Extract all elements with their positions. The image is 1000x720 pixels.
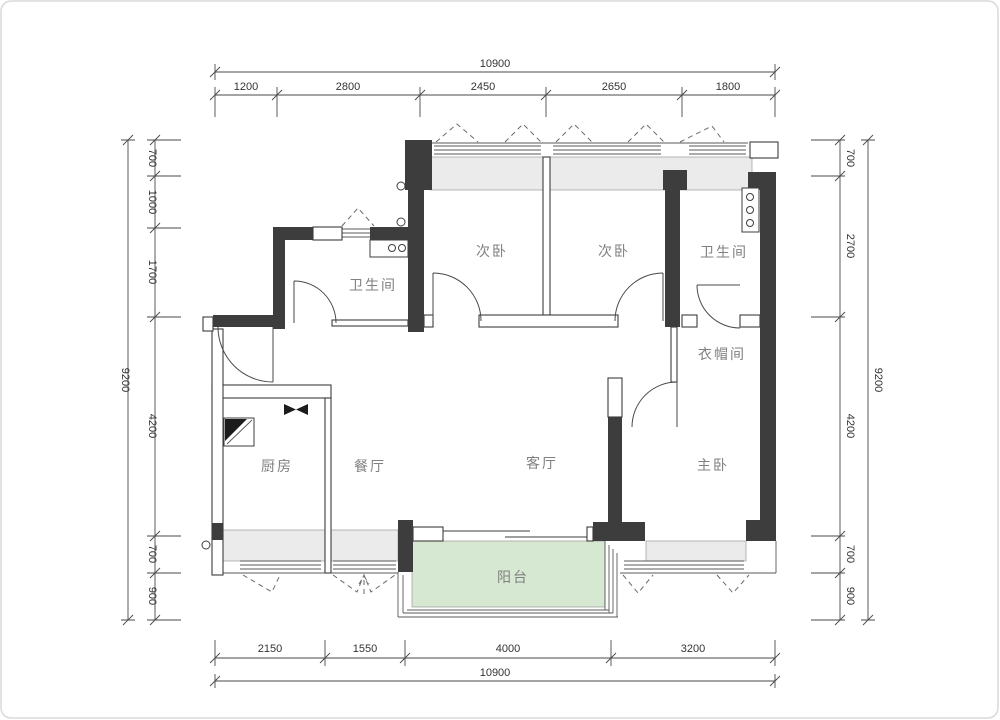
dim-top-seg: 2450 xyxy=(471,81,495,93)
room-label-cloakroom: 衣帽间 xyxy=(698,346,746,362)
balcony-west-column xyxy=(398,520,413,572)
bed1-window xyxy=(434,146,541,154)
swing-bed1-b xyxy=(505,124,541,142)
bath1-door xyxy=(294,281,336,323)
partition-walls xyxy=(203,142,778,575)
corridor-wall-stub xyxy=(608,378,622,417)
dim-top-seg: 2650 xyxy=(602,81,626,93)
dim-left-seg: 1700 xyxy=(146,260,158,284)
swing-bath2 xyxy=(680,126,724,142)
dim-left-seg: 700 xyxy=(146,545,158,563)
dim-left-seg: 4200 xyxy=(146,414,158,438)
entry-wall xyxy=(213,315,285,327)
bath2-south-stub-west xyxy=(682,315,697,327)
dim-ticks-right xyxy=(811,140,875,620)
cloakroom-divider xyxy=(671,327,677,382)
drain-pipe-icon xyxy=(397,218,405,226)
north-west-corner-column xyxy=(405,140,432,190)
bath2-window xyxy=(689,146,746,154)
bay-corner-step xyxy=(750,142,778,158)
balcony-sliding-door xyxy=(443,531,587,537)
bedrooms-south-wall xyxy=(479,315,618,327)
kitchen-window-sill xyxy=(223,530,325,561)
swing-master-a xyxy=(623,575,653,593)
kitchen-sw-column xyxy=(212,523,223,540)
structural-walls xyxy=(212,140,776,572)
dining-window-sill xyxy=(331,530,398,561)
north-bay-sill xyxy=(430,157,752,190)
bath2-south-stub-east xyxy=(740,315,760,327)
dim-top-seg: 1800 xyxy=(716,81,740,93)
dim-right-seg: 700 xyxy=(844,149,856,167)
dim-bottom-seg: 4000 xyxy=(496,643,520,655)
kitchen-north-wall xyxy=(212,385,331,398)
swing-bed1-a xyxy=(436,124,478,142)
dim-bottom-seg: 3200 xyxy=(681,643,705,655)
slider-jamb-east xyxy=(587,527,593,541)
bed1-bed2-divider xyxy=(543,157,550,315)
master-west-wall xyxy=(608,417,622,527)
drain-pipe-icon xyxy=(397,182,405,190)
dim-bottom-seg: 2150 xyxy=(258,643,282,655)
bath2-washbasin xyxy=(742,188,759,232)
bed2-window xyxy=(553,146,661,154)
room-label-bed2: 次卧 xyxy=(598,243,630,259)
bath2-door xyxy=(697,285,740,328)
swing-kitchen xyxy=(243,575,280,592)
windows xyxy=(214,143,776,573)
master-bay-sill xyxy=(646,541,746,561)
room-label-bath1: 卫生间 xyxy=(349,277,397,293)
entry-step xyxy=(203,317,213,331)
dim-bottom-seg: 1550 xyxy=(353,643,377,655)
east-outer-wall xyxy=(760,178,776,527)
bath1-west-wall xyxy=(273,227,285,329)
bed1-west-wall xyxy=(408,190,424,332)
dim-top-seg: 2800 xyxy=(336,81,360,93)
room-label-bath2: 卫生间 xyxy=(700,244,748,260)
swing-master-b xyxy=(717,575,749,593)
bath1-south-wall xyxy=(332,320,408,326)
dim-top-seg: 1200 xyxy=(234,81,258,93)
bath1-window xyxy=(342,229,370,237)
room-label-bed1: 次卧 xyxy=(476,243,508,259)
dim-left-seg: 900 xyxy=(146,587,158,605)
dim-right-seg: 2700 xyxy=(844,234,856,258)
bed1-south-stub xyxy=(424,315,433,327)
swing-bath1 xyxy=(342,208,374,226)
dim-left-seg: 1000 xyxy=(146,190,158,214)
north-mid-column xyxy=(663,170,687,190)
room-label-dining: 餐厅 xyxy=(354,458,386,474)
living-south-column xyxy=(593,522,645,541)
swing-bed2-a xyxy=(556,124,592,142)
bed2-bath2-divider xyxy=(665,190,680,327)
bath1-window-jamb xyxy=(313,227,342,240)
entry-door xyxy=(218,327,273,382)
bath1-washbasin xyxy=(370,240,408,257)
dim-right-seg: 4200 xyxy=(844,414,856,438)
swing-dining-arrow xyxy=(359,576,369,594)
dim-right-total: 9200 xyxy=(872,368,884,392)
bed1-door xyxy=(433,273,481,321)
slider-jamb-west xyxy=(413,527,443,541)
floor-plan-canvas: 10900 1200 2800 2450 2650 1800 2150 1550… xyxy=(0,0,1000,720)
bed2-door xyxy=(615,273,663,321)
doors xyxy=(218,273,740,427)
drain-pipe-icon xyxy=(202,541,210,549)
dim-left-total: 9200 xyxy=(119,368,131,392)
dim-bottom-total: 10900 xyxy=(480,667,511,679)
kitchen-sink xyxy=(224,418,254,446)
kitchen-dining-divider xyxy=(325,398,331,573)
master-door xyxy=(632,382,677,427)
floor-plan-page: 10900 1200 2800 2450 2650 1800 2150 1550… xyxy=(0,0,1000,720)
dim-top-total: 10900 xyxy=(480,58,511,70)
room-label-living: 客厅 xyxy=(526,455,558,471)
room-label-master: 主卧 xyxy=(697,457,729,473)
room-label-kitchen: 厨房 xyxy=(261,458,293,474)
bath1-north-wall-east xyxy=(370,227,424,240)
dim-right-seg: 900 xyxy=(844,587,856,605)
dim-left-seg: 700 xyxy=(146,149,158,167)
room-label-balcony: 阳台 xyxy=(497,569,529,585)
dining-window-glass xyxy=(333,561,396,569)
kitchen-flue xyxy=(284,404,308,415)
swing-bed2-b xyxy=(628,124,664,142)
master-se-column xyxy=(746,520,776,541)
kitchen-window-glass xyxy=(214,561,398,573)
dim-right-seg: 700 xyxy=(844,545,856,563)
